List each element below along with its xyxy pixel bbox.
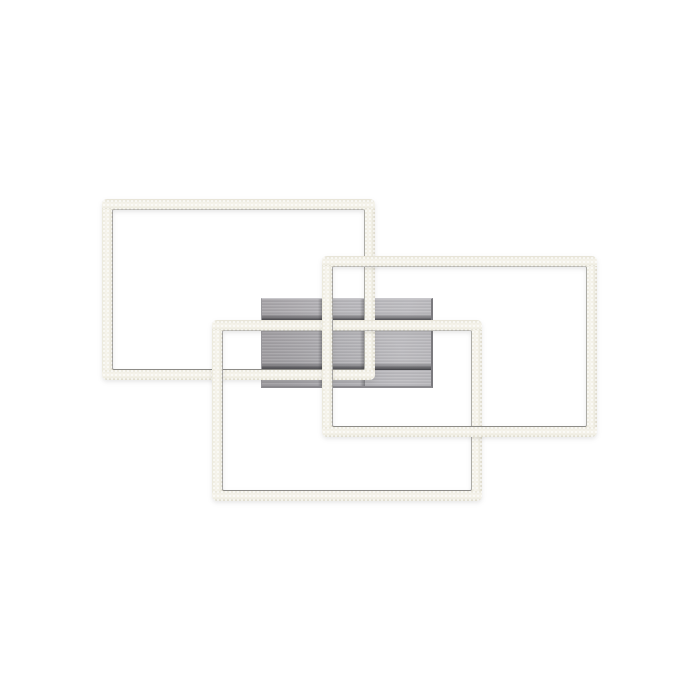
led-frame-bottom-left-bar-left — [212, 330, 223, 491]
led-frame-right — [322, 256, 597, 437]
led-frame-right-bar-right — [586, 266, 597, 427]
product-photo-ceiling-light — [0, 0, 700, 700]
led-frame-bottom-left-bar-bottom — [212, 490, 482, 501]
led-frame-top-left-bar-top — [102, 199, 375, 210]
led-frame-right-bar-left — [322, 266, 333, 427]
led-frame-right-bar-bottom — [322, 426, 597, 437]
led-frame-right-inner-edge — [332, 266, 587, 427]
led-frame-top-left-bar-left — [102, 209, 113, 370]
led-frame-right-bar-top — [322, 256, 597, 267]
